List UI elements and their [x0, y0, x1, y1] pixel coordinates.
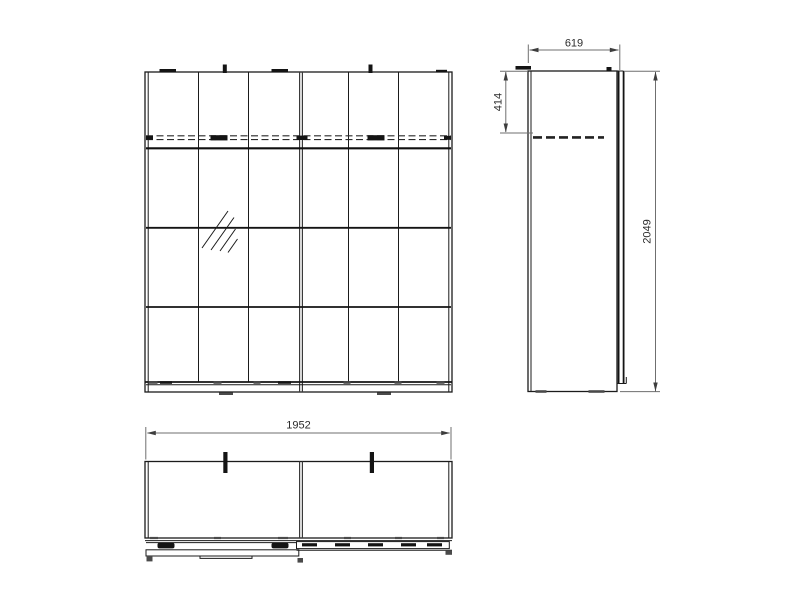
side-top-bracket: [516, 66, 532, 70]
plan-guide-left: [147, 556, 153, 561]
front-outline: [145, 72, 452, 392]
plan-middle-divider: [300, 462, 303, 539]
dim-label-width: 1952: [286, 420, 310, 432]
front-middle-divider: [300, 72, 303, 392]
dimension-width: 1952: [146, 420, 451, 460]
dimension-height: 2049: [620, 71, 660, 391]
plan-back-door-fittings: [302, 543, 442, 546]
mirror-hatch: [202, 211, 238, 253]
plan-front-door: [146, 550, 299, 556]
dim-label-height: 2049: [642, 219, 654, 243]
plan-view: 1952: [145, 420, 452, 563]
side-outline: [528, 71, 617, 392]
plan-guide-right: [446, 550, 453, 555]
dimension-rail-offset: 414: [493, 71, 534, 133]
drawing-canvas: 619 414 2049 1952: [0, 0, 800, 600]
dim-label-rail-offset: 414: [493, 93, 505, 111]
drawing-page: 619 414 2049 1952: [0, 0, 800, 600]
plan-roller-left: [158, 543, 175, 549]
side-view: 619 414 2049: [493, 38, 661, 393]
front-side-panels: [148, 72, 449, 392]
plan-guide-middle: [298, 558, 304, 563]
plan-track-assembly: [145, 541, 452, 563]
plan-outline: [145, 462, 452, 539]
front-feet: [219, 393, 391, 396]
dim-label-depth: 619: [565, 38, 583, 50]
plan-side-panels: [148, 462, 449, 539]
front-shelf-lines: [146, 228, 451, 307]
side-top-roller: [607, 67, 612, 71]
dimension-depth: 619: [528, 38, 620, 71]
plan-door-handles: [223, 452, 374, 473]
front-view: [145, 65, 452, 396]
plan-roller-right: [272, 543, 289, 549]
side-door-profile: [619, 71, 624, 384]
